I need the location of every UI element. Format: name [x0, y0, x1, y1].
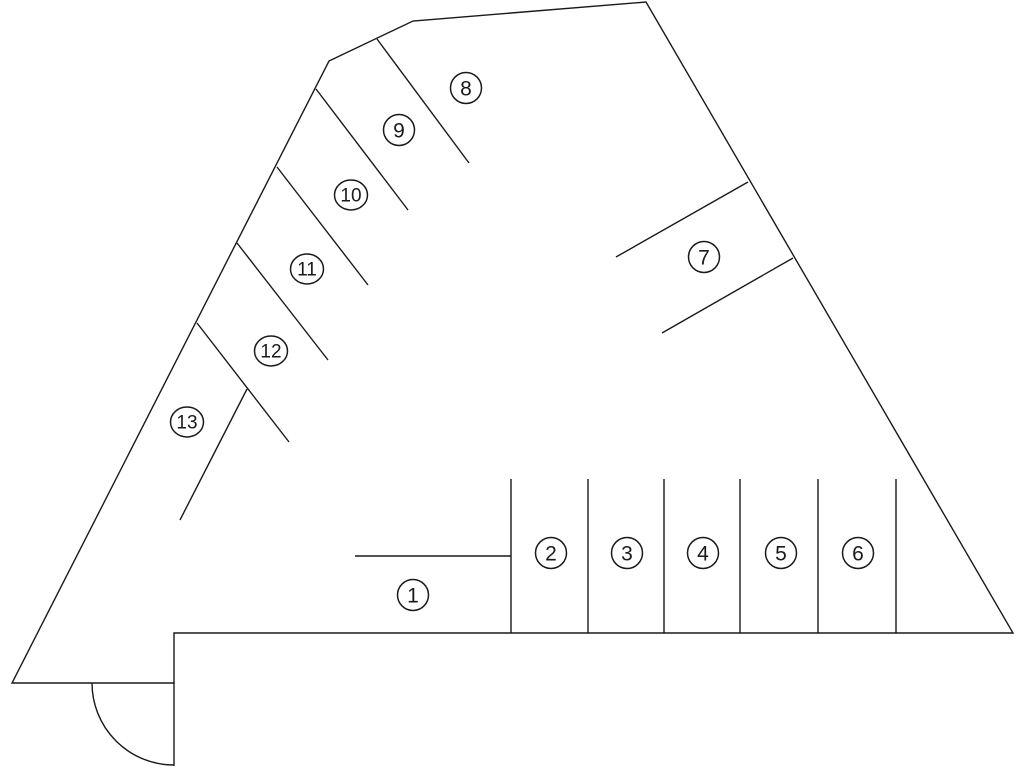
diagram-canvas: 12345678910111213 [0, 0, 1024, 768]
space-13-marker: 13 [171, 407, 204, 437]
lot-outline [12, 2, 1013, 683]
space-6-number: 6 [852, 542, 864, 565]
space-2-marker: 2 [536, 538, 567, 569]
space-10-marker: 10 [335, 180, 368, 210]
space-11-number: 11 [297, 260, 317, 281]
space-9-number: 9 [393, 119, 405, 142]
space-5-number: 5 [775, 542, 787, 565]
parking-lot-diagram: 12345678910111213 [0, 0, 1024, 768]
space-3-number: 3 [621, 542, 633, 565]
space-2-number: 2 [545, 542, 557, 565]
space-7-number: 7 [698, 246, 710, 269]
space-1-marker: 1 [398, 580, 429, 611]
space-12-marker: 12 [255, 336, 288, 366]
space-5-marker: 5 [766, 538, 797, 569]
space-3-marker: 3 [612, 538, 643, 569]
space-9-marker: 9 [384, 115, 415, 146]
divider-space-7-lower [662, 258, 793, 333]
door-swing-arc [92, 683, 174, 765]
space-1-number: 1 [407, 584, 419, 607]
space-13-number: 13 [176, 413, 197, 434]
space-12-number: 12 [260, 342, 281, 363]
space-7-marker: 7 [689, 242, 720, 273]
space-8-marker: 8 [451, 73, 482, 104]
space-8-number: 8 [460, 77, 472, 100]
space-11-marker: 11 [291, 254, 324, 284]
space-6-marker: 6 [843, 538, 874, 569]
divider-space-7-upper [616, 182, 748, 257]
divider-space-8-9 [377, 39, 469, 163]
space-10-number: 10 [340, 186, 361, 207]
space-4-number: 4 [697, 542, 709, 565]
space-4-marker: 4 [688, 538, 719, 569]
